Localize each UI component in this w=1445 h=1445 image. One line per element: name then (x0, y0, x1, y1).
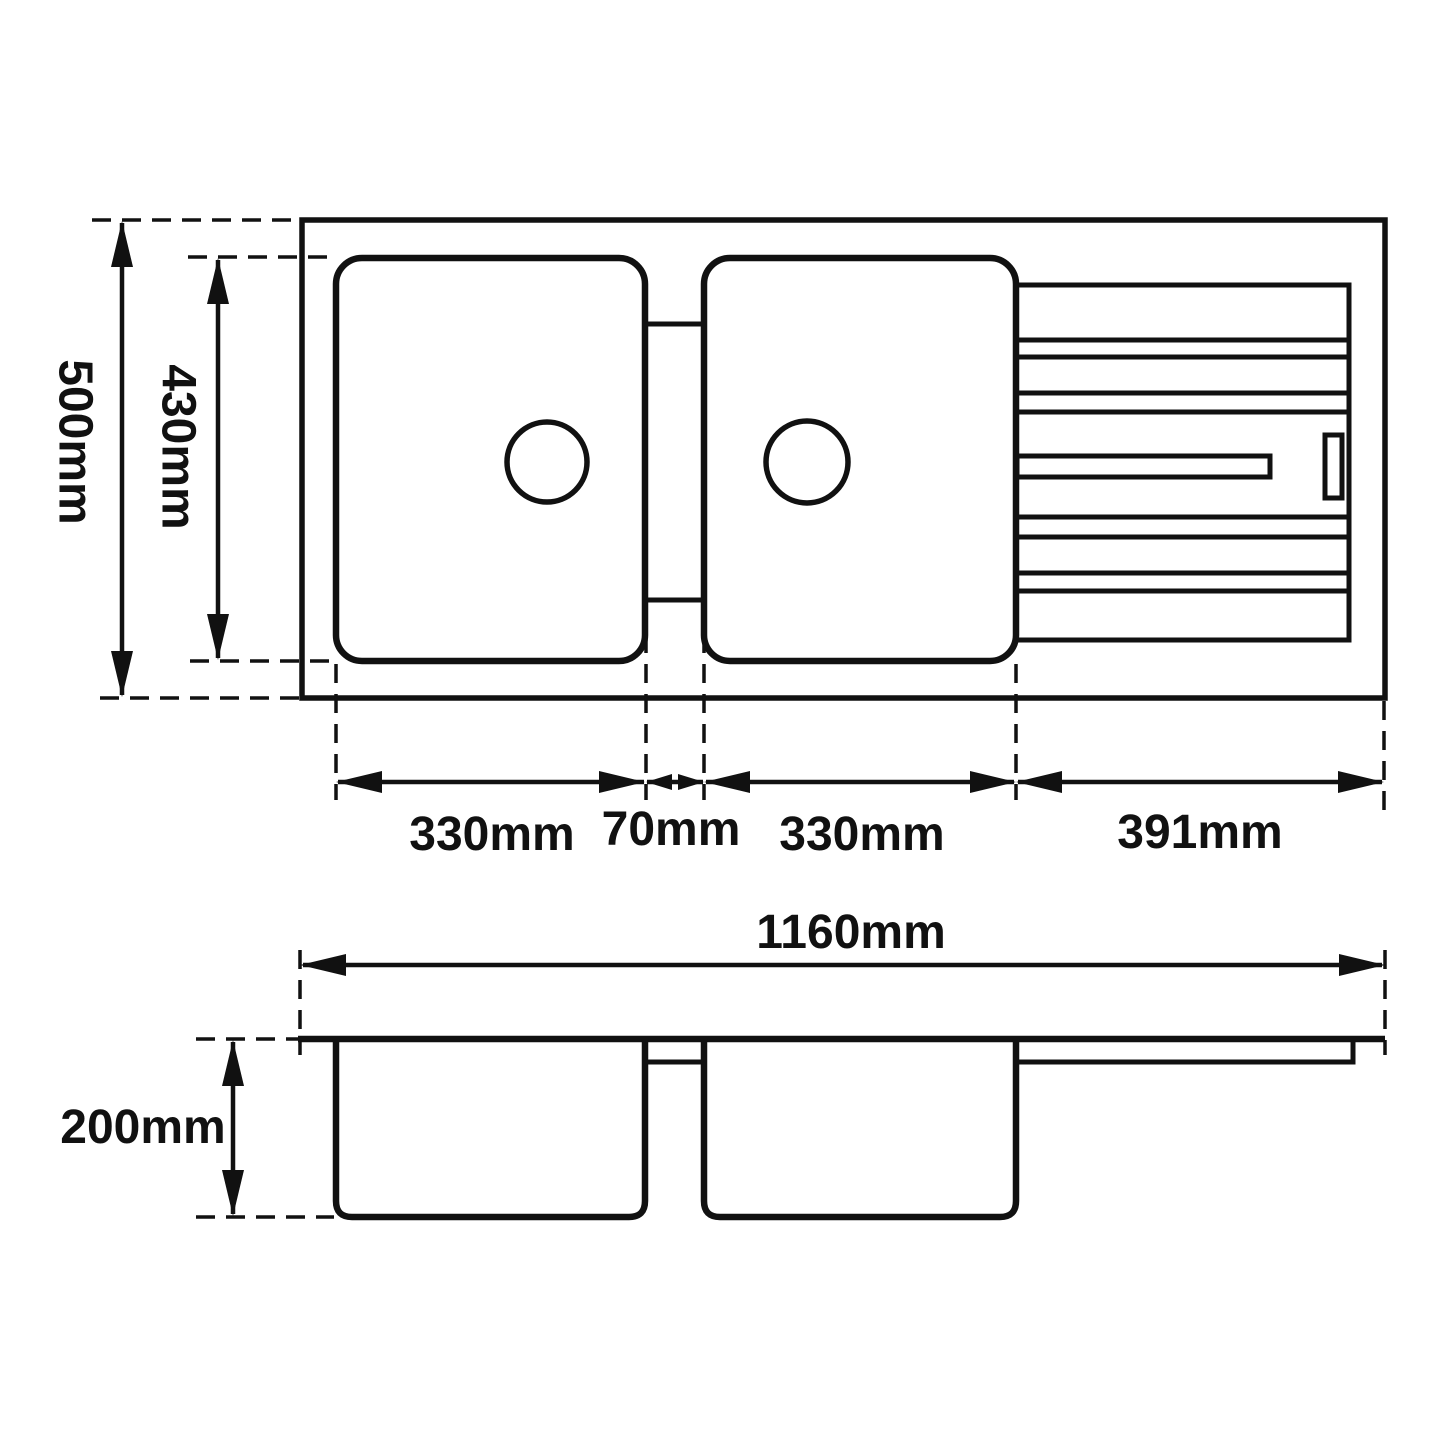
arrowhead-up (222, 1040, 244, 1086)
drainer-center-ridge (1017, 456, 1270, 477)
drainer-slab-underside (1016, 1039, 1353, 1062)
arrowhead-down (111, 651, 133, 697)
arrowhead-up (111, 221, 133, 267)
left-bowl-section (336, 1039, 645, 1217)
side-view (196, 950, 1385, 1217)
dim-70mm-label: 70mm (602, 803, 741, 856)
dim-330mm-left-label: 330mm (409, 808, 574, 861)
drawing-canvas: 500mm 430mm 330mm 70mm 330mm 391mm (0, 0, 1445, 1445)
drainer-overflow-slot (1325, 435, 1342, 498)
dim-391mm-label: 391mm (1117, 806, 1282, 859)
arrowhead-right (599, 771, 645, 793)
left-bowl-drain-hole (507, 422, 587, 502)
arrowhead-left (336, 771, 382, 793)
dim-500mm-label: 500mm (49, 359, 102, 524)
arrowhead-down (207, 614, 229, 660)
side-view-labels: 1160mm 200mm (60, 906, 945, 1154)
arrowhead-left-small (646, 774, 672, 790)
arrowhead-left (1016, 771, 1062, 793)
dim-430mm-label: 430mm (152, 364, 205, 529)
arrowhead-left (300, 954, 346, 976)
dim-200mm-label: 200mm (60, 1101, 225, 1154)
arrowhead-right (1338, 771, 1384, 793)
side-view-extension-lines (196, 950, 1385, 1217)
arrowhead-up (207, 258, 229, 304)
dim-1160mm-label: 1160mm (756, 906, 946, 959)
right-bowl-section (704, 1039, 1016, 1217)
dim-330mm-right-label: 330mm (779, 808, 944, 861)
sink-technical-drawing: 500mm 430mm 330mm 70mm 330mm 391mm (0, 0, 1445, 1445)
right-bowl-drain-hole (766, 421, 848, 503)
arrowhead-left (704, 771, 750, 793)
right-bowl (704, 258, 1016, 661)
drainer-grooves (1017, 340, 1349, 591)
top-view (92, 220, 1385, 810)
arrowhead-right (970, 771, 1016, 793)
left-bowl (336, 258, 645, 661)
side-view-arrowheads (222, 954, 1385, 1216)
arrowhead-down (222, 1170, 244, 1216)
side-view-dimension-lines (233, 965, 1382, 1214)
arrowhead-right (1339, 954, 1385, 976)
arrowhead-right-small (678, 774, 704, 790)
sink-outline (302, 220, 1385, 698)
